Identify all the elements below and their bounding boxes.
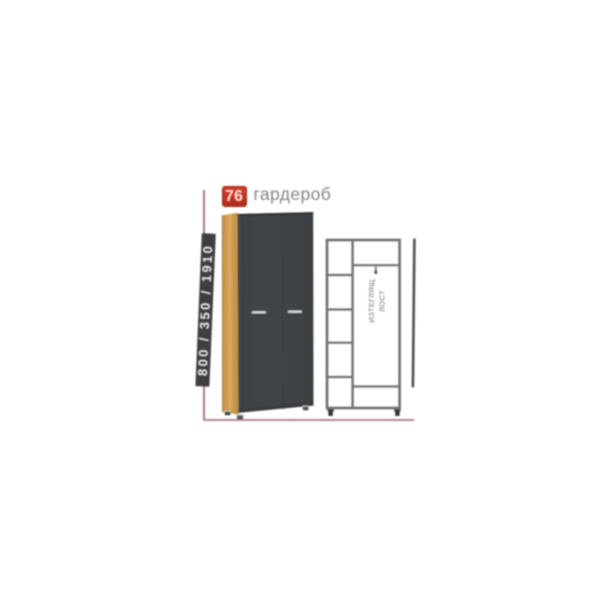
svg-text:ИЗТЕГЛЯЩ: ИЗТЕГЛЯЩ xyxy=(367,279,376,322)
svg-text:ЛОСТ: ЛОСТ xyxy=(378,290,387,312)
